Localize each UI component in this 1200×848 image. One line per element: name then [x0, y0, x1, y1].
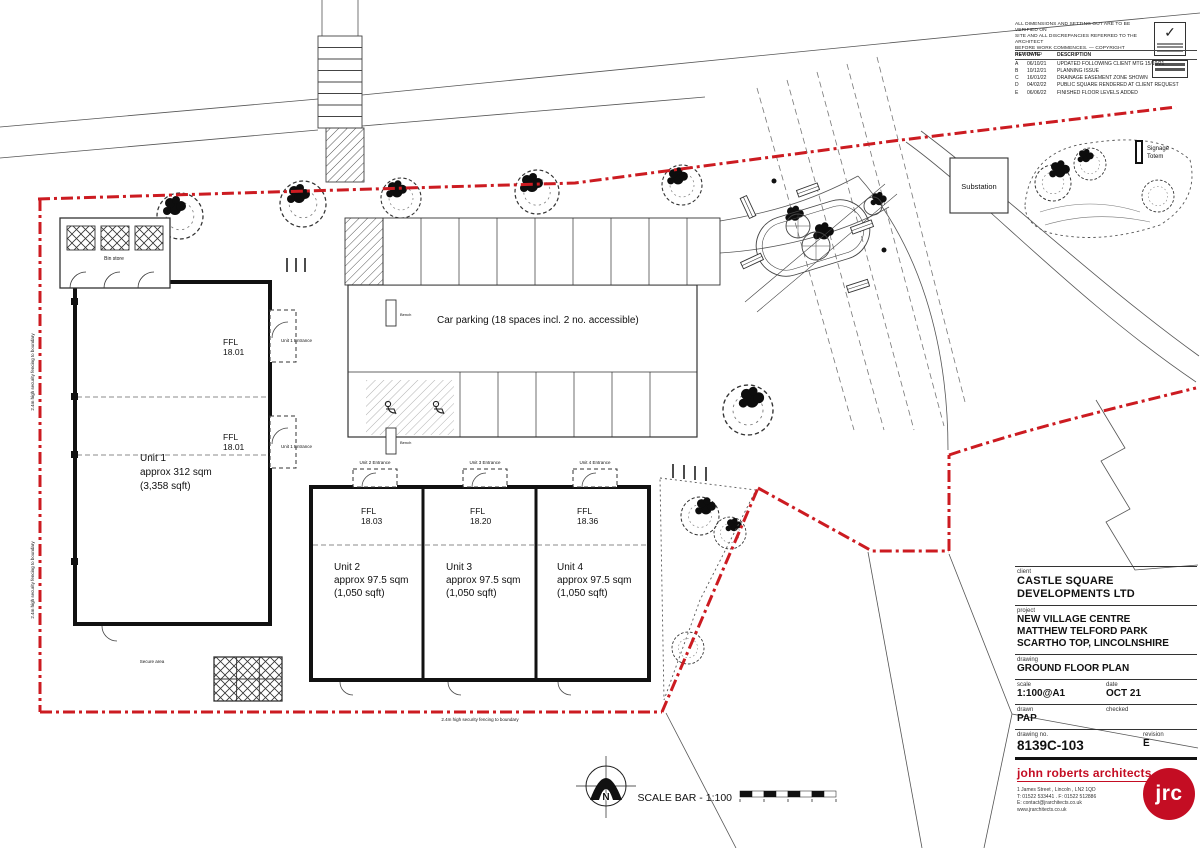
revision-row: B 10/12/21 PLANNING ISSUE	[1015, 68, 1197, 75]
revision-header-date: DATE	[1027, 52, 1057, 58]
entrance3-label: Unit 3 Entrance	[469, 460, 501, 465]
revision-rev: C	[1015, 75, 1027, 81]
car-park	[345, 218, 720, 437]
unit3-area: approx 97.5 sqm	[446, 575, 521, 586]
project-name: NEW VILLAGE CENTRE	[1017, 614, 1195, 626]
jrc-logo-text: jrc	[1155, 782, 1182, 806]
client-name: DEVELOPMENTS LTD	[1017, 588, 1195, 601]
note-line: SITE AND ALL DISCREPANCIES REFERRED TO T…	[1015, 34, 1145, 46]
revision-row: C 16/01/22 DRAINAGE EASEMENT ZONE SHOWN	[1015, 75, 1197, 82]
client-section: client CASTLE SQUARE DEVELOPMENTS LTD	[1015, 566, 1197, 605]
unit4-name: Unit 4	[557, 562, 584, 573]
bin-store	[60, 218, 170, 288]
scale-date-section: scale 1:100@A1 date OCT 21	[1015, 679, 1197, 704]
revision-desc: FINISHED FLOOR LEVELS ADDED	[1057, 90, 1197, 96]
revision-header-rev: REV.	[1015, 52, 1027, 58]
project-name: SCARTHO TOP, LINCOLNSHIRE	[1017, 638, 1195, 650]
secure-area-label: Secure area	[140, 659, 165, 664]
check-icon: ✓	[1164, 24, 1176, 40]
revision-desc: PLANNING ISSUE	[1057, 68, 1197, 74]
unit1-ffl-value: 18.01	[223, 347, 245, 357]
revision-desc: PUBLIC SQUARE RENDERED AT CLIENT REQUEST	[1057, 82, 1197, 88]
date-value: OCT 21	[1106, 688, 1195, 700]
fence-note-left: 2.4m high security fencing to boundary	[30, 333, 35, 411]
drawn-value: PAP	[1017, 713, 1106, 725]
drawing-sheet: N Car parking (18 spaces incl. 2 no. acc…	[0, 0, 1200, 848]
unit3-name: Unit 3	[446, 562, 473, 573]
substation-label: Substation	[961, 182, 996, 191]
revision-date: 06/10/21	[1027, 61, 1057, 67]
jrc-logo: jrc	[1143, 768, 1195, 820]
secure-store	[214, 657, 282, 701]
checked-label: checked	[1106, 707, 1195, 713]
unit2-area-ft: (1,050 sqft)	[334, 588, 385, 599]
fence-note-left: 2.4m high security fencing to boundary	[30, 541, 35, 619]
entrance1-label: Unit 1 Entrance	[281, 338, 313, 343]
entrance2-label: Unit 2 Entrance	[359, 460, 391, 465]
litter-bin	[772, 179, 777, 184]
project-section: project NEW VILLAGE CENTRE MATTHEW TELFO…	[1015, 605, 1197, 654]
revision-date: 10/12/21	[1027, 68, 1057, 74]
drawing-section: drawing GROUND FLOOR PLAN	[1015, 654, 1197, 679]
north-arrow: N	[576, 756, 636, 818]
revision-header: REV. DATE DESCRIPTION	[1015, 50, 1197, 60]
scale-bar	[740, 791, 836, 802]
revision-rev: E	[1015, 90, 1027, 96]
footway-steps	[318, 36, 364, 182]
unit4-area: approx 97.5 sqm	[557, 575, 632, 586]
unit4-area-ft: (1,050 sqft)	[557, 588, 608, 599]
drawing-no-value: 8139C-103	[1017, 738, 1143, 753]
unit3-ffl-label: FFL	[470, 506, 485, 516]
unit1-name: Unit 1	[140, 453, 167, 464]
revision-desc: UPDATED FOLLOWING CLIENT MTG 15/10/21	[1057, 61, 1197, 67]
revision-header-desc: DESCRIPTION	[1057, 52, 1197, 58]
architect-section: john roberts architects 1 James Street ,…	[1015, 757, 1197, 840]
unit1-ffl-label: FFL	[223, 337, 238, 347]
number-revision-section: drawing no. 8139C-103 revision E	[1015, 729, 1197, 757]
revision-date: 04/02/22	[1027, 82, 1057, 88]
unit4-ffl-label: FFL	[577, 506, 592, 516]
unit1-ffl-label: FFL	[223, 432, 238, 442]
fence-note-bottom: 2.4m high security fencing to boundary	[441, 717, 519, 722]
architect-name: john roberts architects	[1017, 766, 1152, 782]
bin-store-label: Bin store	[104, 256, 124, 262]
unit2-ffl-value: 18.03	[361, 516, 383, 526]
title-block-sections: client CASTLE SQUARE DEVELOPMENTS LTD pr…	[1015, 566, 1197, 840]
litter-bin	[882, 248, 887, 253]
scale-value: 1:100@A1	[1017, 688, 1106, 700]
drawn-checked-section: drawn PAP checked	[1015, 704, 1197, 729]
entrance4-label: Unit 4 Entrance	[579, 460, 611, 465]
revision-desc: DRAINAGE EASEMENT ZONE SHOWN	[1057, 75, 1197, 81]
revision-date: 06/06/22	[1027, 90, 1057, 96]
bollards	[287, 258, 305, 272]
revision-date: 16/01/22	[1027, 75, 1057, 81]
project-name: MATTHEW TELFORD PARK	[1017, 626, 1195, 638]
revision-rev: B	[1015, 68, 1027, 74]
unit4-ffl-value: 18.36	[577, 516, 599, 526]
unit-1-building	[71, 282, 296, 641]
unit1-area: approx 312 sqm	[140, 467, 212, 478]
unit2-name: Unit 2	[334, 562, 361, 573]
drawing-title: GROUND FLOOR PLAN	[1017, 663, 1195, 675]
car-parking-label: Car parking (18 spaces incl. 2 no. acces…	[437, 315, 639, 326]
bench-label: Bench	[400, 440, 411, 445]
north-letter: N	[602, 792, 609, 803]
scale-bar-label: SCALE BAR - 1:100	[637, 792, 732, 804]
unit3-area-ft: (1,050 sqft)	[446, 588, 497, 599]
bench-symbol	[386, 300, 396, 326]
unit3-ffl-value: 18.20	[470, 516, 492, 526]
unit2-ffl-label: FFL	[361, 506, 376, 516]
revision-row: E 06/06/22 FINISHED FLOOR LEVELS ADDED	[1015, 89, 1197, 96]
revision-row: A 06/10/21 UPDATED FOLLOWING CLIENT MTG …	[1015, 60, 1197, 67]
title-block: ALL DIMENSIONS AND SETTING OUT ARE TO BE…	[1010, 0, 1200, 848]
unit1-ffl-value: 18.01	[223, 442, 245, 452]
bench-symbol	[386, 428, 396, 454]
revision-rev: D	[1015, 82, 1027, 88]
revision-row: D 04/02/22 PUBLIC SQUARE RENDERED AT CLI…	[1015, 82, 1197, 89]
bollards	[673, 464, 706, 481]
revision-value: E	[1143, 738, 1195, 750]
client-name: CASTLE SQUARE	[1017, 575, 1195, 588]
note-line: ALL DIMENSIONS AND SETTING OUT ARE TO BE…	[1015, 22, 1145, 34]
unit1-area-ft: (3,358 sqft)	[140, 481, 191, 492]
revision-rev: A	[1015, 61, 1027, 67]
revision-table: REV. DATE DESCRIPTION A 06/10/21 UPDATED…	[1015, 50, 1197, 96]
bench-label: Bench	[400, 312, 411, 317]
entrance1-label: Unit 1 Entrance	[281, 444, 313, 449]
unit2-area: approx 97.5 sqm	[334, 575, 409, 586]
